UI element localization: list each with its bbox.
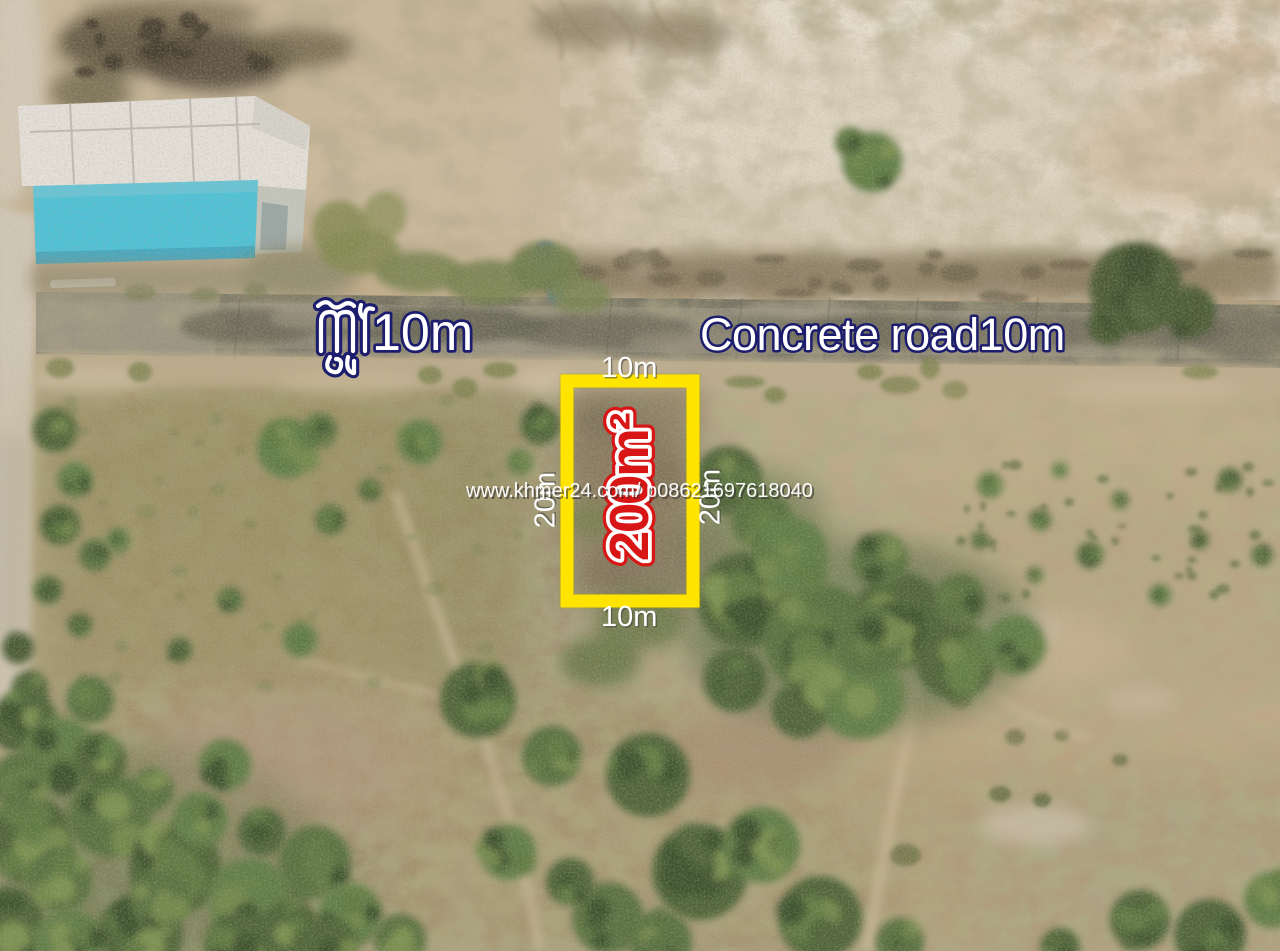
svg-text:Concrete road10m: Concrete road10m [700, 309, 1065, 360]
svg-text:www.khmer24.com/ p086216976180: www.khmer24.com/ p08621697618040 [465, 480, 813, 502]
svg-text:10m: 10m [372, 304, 473, 362]
svg-text:10m: 10m [601, 601, 657, 633]
svg-text:10m: 10m [601, 352, 657, 384]
